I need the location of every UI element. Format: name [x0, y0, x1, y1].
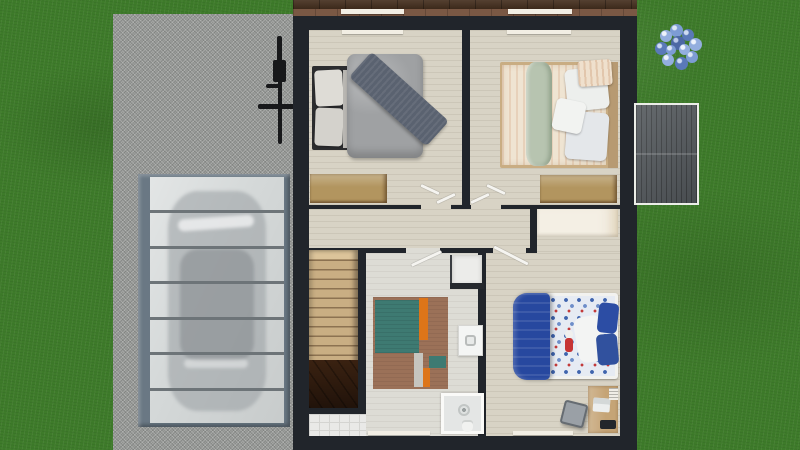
- bed-right-striped-pillow: [577, 59, 613, 87]
- doorway-bedroom-right: [471, 203, 501, 209]
- rug-teal-block: [375, 300, 419, 353]
- bicycle-handlebar: [258, 104, 296, 109]
- laptop: [593, 397, 611, 412]
- staircase: [309, 250, 358, 408]
- staircase-winder-steps: [309, 360, 358, 408]
- carport-roof-beam: [150, 352, 284, 355]
- dresser-bedroom-left: [310, 174, 387, 203]
- car-silhouette: [168, 191, 266, 411]
- doorway-bedroom-left: [421, 203, 451, 209]
- toilet: [462, 420, 473, 432]
- rug-orange-stripe: [419, 298, 428, 340]
- window-bedroom-left: [342, 30, 403, 34]
- window-bedroom-right: [507, 30, 571, 34]
- kids-bed-blue-pillow: [596, 302, 619, 334]
- carport-roof-beam: [150, 281, 284, 284]
- hallway-closet: [537, 209, 618, 237]
- bicycle: [250, 32, 296, 150]
- shower-cabin: [441, 393, 484, 434]
- hydrangea-bush: [653, 24, 703, 70]
- bicycle-pedal: [266, 84, 280, 88]
- car-roof: [180, 249, 254, 361]
- hallway-floor: [309, 209, 530, 248]
- dresser-bedroom-right: [540, 175, 617, 203]
- area-rug: [373, 297, 448, 389]
- entry-tile-floor: [309, 414, 366, 436]
- bed-right-sage-throw: [526, 62, 552, 166]
- floor-plan-render: [0, 0, 800, 450]
- washing-machine-door-icon: [465, 335, 476, 346]
- exterior-window-sill-left: [341, 9, 404, 14]
- bed-left-pillow: [314, 69, 344, 106]
- papers-on-desk: [609, 388, 618, 400]
- carport: [138, 174, 290, 427]
- rug-orange-small-stripe: [423, 368, 430, 387]
- vanity-counter-edge: [450, 283, 484, 289]
- roof-eave-dark-planks: [293, 0, 637, 9]
- carport-glass-roof: [150, 177, 284, 423]
- kids-bed-blue-pillow: [596, 333, 620, 366]
- sink-vanity: [452, 255, 482, 285]
- carport-roof-beam: [150, 388, 284, 391]
- flower-blossom: [662, 54, 674, 66]
- shed-roof-ridge: [636, 153, 697, 155]
- washing-machine: [458, 325, 483, 356]
- exterior-window-sill-right: [508, 9, 572, 14]
- desk-chair: [560, 400, 590, 431]
- window-kids-bedroom: [513, 431, 573, 435]
- carport-roof-beam: [150, 246, 284, 249]
- rug-gray-stripe: [414, 353, 423, 387]
- flower-blossom: [660, 30, 672, 42]
- carport-roof-beam: [150, 317, 284, 320]
- flower-blossom: [679, 44, 690, 55]
- shed-roof: [634, 103, 699, 205]
- flower-blossom: [675, 57, 688, 70]
- bed-left-pillow: [314, 108, 343, 147]
- keyboard-on-desk: [600, 420, 616, 429]
- car-rear-glint: [184, 359, 248, 368]
- bicycle-saddle: [273, 60, 286, 82]
- toy-on-bed: [565, 338, 573, 352]
- shower-drain-icon: [458, 404, 470, 416]
- window-bathroom: [368, 431, 430, 435]
- flower-blossom: [689, 38, 702, 51]
- desk-chair-seat: [559, 399, 588, 428]
- flower-blossom: [666, 45, 676, 55]
- rug-teal-small-block: [429, 356, 446, 368]
- house: [293, 0, 637, 450]
- carport-roof-beam: [150, 210, 284, 213]
- kids-bed-blue-duvet: [513, 293, 550, 380]
